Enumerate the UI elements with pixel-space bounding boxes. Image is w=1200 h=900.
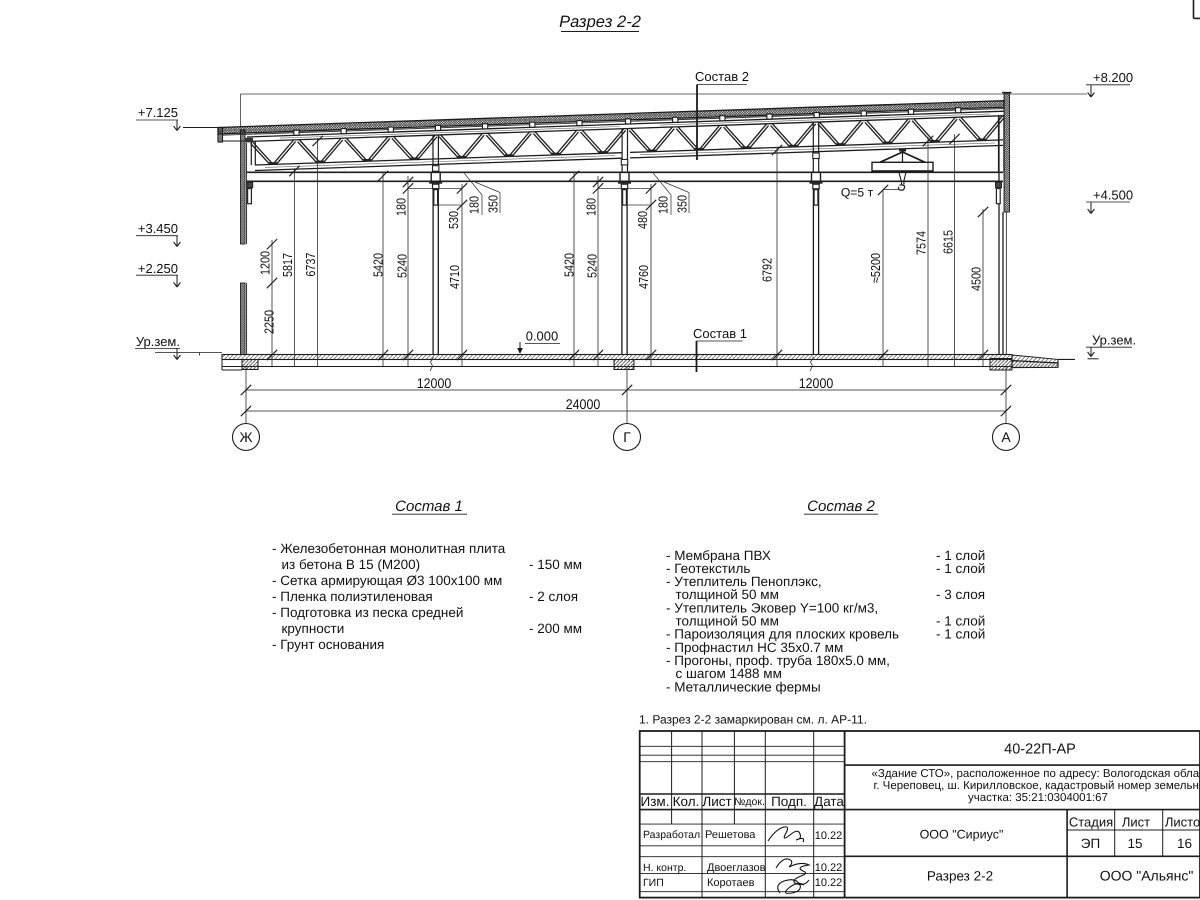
svg-text:10.22: 10.22 xyxy=(815,877,843,889)
svg-text:- 2 слоя: - 2 слоя xyxy=(529,589,578,604)
svg-text:4710: 4710 xyxy=(447,265,462,289)
svg-text:Ур.зем.: Ур.зем. xyxy=(1092,333,1136,348)
svg-text:Ур.зем.: Ур.зем. xyxy=(136,334,180,349)
svg-text:Решетова: Решетова xyxy=(705,829,756,841)
svg-text:40-22П-АР: 40-22П-АР xyxy=(1004,742,1076,758)
svg-text:350: 350 xyxy=(675,195,690,213)
svg-text:- Грунт основания: - Грунт основания xyxy=(272,637,384,652)
svg-text:Н. контр.: Н. контр. xyxy=(643,862,686,874)
svg-text:6792: 6792 xyxy=(760,258,775,282)
svg-text:Лист: Лист xyxy=(1122,815,1150,830)
svg-text:10.22: 10.22 xyxy=(815,830,843,842)
svg-text:+2.250: +2.250 xyxy=(138,261,178,276)
svg-text:≈5200: ≈5200 xyxy=(868,253,883,283)
svg-text:Разрез 2-2: Разрез 2-2 xyxy=(927,869,993,884)
svg-text:Стадия: Стадия xyxy=(1069,815,1113,830)
svg-text:- 1 слой: - 1 слой xyxy=(936,561,985,576)
svg-text:12000: 12000 xyxy=(799,375,834,391)
svg-text:- Подготовка из песка средней: - Подготовка из песка средней xyxy=(272,605,463,620)
svg-text:Разрез 2-2: Разрез 2-2 xyxy=(559,13,641,31)
svg-text:из бетона В 15 (М200): из бетона В 15 (М200) xyxy=(282,557,421,572)
svg-text:530: 530 xyxy=(446,211,461,229)
svg-text:- 1 слой: - 1 слой xyxy=(936,627,985,642)
svg-text:5420: 5420 xyxy=(562,253,577,277)
svg-text:Кол.: Кол. xyxy=(673,794,700,809)
svg-text:+8.200: +8.200 xyxy=(1093,70,1133,85)
svg-text:участка: 35:21:0304001:67: участка: 35:21:0304001:67 xyxy=(968,792,1108,804)
svg-text:№док.: №док. xyxy=(734,796,765,808)
svg-text:180: 180 xyxy=(584,198,599,216)
svg-text:Лист: Лист xyxy=(702,794,731,809)
svg-text:0.000: 0.000 xyxy=(526,329,559,344)
svg-text:180: 180 xyxy=(656,196,671,214)
svg-text:ЭП: ЭП xyxy=(1081,836,1100,851)
svg-text:Состав 2: Состав 2 xyxy=(695,69,749,84)
svg-text:350: 350 xyxy=(486,195,501,213)
svg-text:«Здание СТО», расположенное по: «Здание СТО», расположенное по адресу: В… xyxy=(872,768,1200,780)
svg-text:5240: 5240 xyxy=(395,254,410,278)
svg-text:10.22: 10.22 xyxy=(815,862,843,874)
svg-text:15: 15 xyxy=(1127,836,1142,851)
svg-text:- Пленка полиэтиленовая: - Пленка полиэтиленовая xyxy=(272,589,433,604)
svg-text:- 150 мм: - 150 мм xyxy=(529,557,582,572)
svg-text:1. Разрез 2-2 замаркирован см.: 1. Разрез 2-2 замаркирован см. л. АР-11. xyxy=(639,713,867,727)
svg-text:ГИП: ГИП xyxy=(643,877,664,889)
svg-text:180: 180 xyxy=(394,198,409,216)
svg-text:+4.500: +4.500 xyxy=(1093,188,1133,203)
svg-text:Разработал: Разработал xyxy=(643,829,700,841)
svg-text:4760: 4760 xyxy=(636,265,651,289)
svg-text:- 3 слоя: - 3 слоя xyxy=(936,587,985,602)
svg-text:- Сетка армирующая Ø3 100х100: - Сетка армирующая Ø3 100х100 мм xyxy=(272,573,502,588)
svg-text:ООО "Альянс": ООО "Альянс" xyxy=(1100,868,1194,884)
svg-text:г. Череповец, ш. Кирилловское,: г. Череповец, ш. Кирилловское, кадастров… xyxy=(874,780,1200,792)
svg-text:180: 180 xyxy=(467,196,482,214)
svg-text:1200: 1200 xyxy=(257,251,272,275)
svg-text:Состав 1: Состав 1 xyxy=(395,498,463,515)
svg-text:5420: 5420 xyxy=(371,253,386,277)
svg-text:5240: 5240 xyxy=(585,254,600,278)
svg-text:24000: 24000 xyxy=(566,396,601,412)
svg-text:6615: 6615 xyxy=(941,230,956,254)
svg-text:Г: Г xyxy=(623,429,631,445)
svg-text:7574: 7574 xyxy=(914,231,929,255)
svg-text:2250: 2250 xyxy=(262,310,277,334)
svg-text:- 200 мм: - 200 мм xyxy=(529,621,582,636)
svg-text:ООО "Сириус": ООО "Сириус" xyxy=(920,828,1004,842)
svg-text:Ж: Ж xyxy=(240,429,253,445)
svg-text:крупности: крупности xyxy=(282,621,345,636)
svg-text:5817: 5817 xyxy=(280,253,295,277)
svg-text:Состав 2: Состав 2 xyxy=(807,498,875,515)
svg-text:- Железобетонная монолитная п: - Железобетонная монолитная плита xyxy=(272,541,506,556)
svg-text:Листов: Листов xyxy=(1165,815,1200,830)
svg-text:+7.125: +7.125 xyxy=(138,105,178,120)
svg-text:- Металлические фермы: - Металлические фермы xyxy=(666,679,821,694)
svg-text:4500: 4500 xyxy=(969,267,984,291)
svg-text:Состав 1: Состав 1 xyxy=(693,326,747,341)
svg-text:Подп.: Подп. xyxy=(771,794,807,809)
svg-text:Изм.: Изм. xyxy=(641,794,670,809)
svg-text:+3.450: +3.450 xyxy=(138,221,178,236)
svg-text:16: 16 xyxy=(1177,836,1192,851)
svg-text:Двоеглазов: Двоеглазов xyxy=(707,862,766,874)
svg-text:6737: 6737 xyxy=(303,253,318,277)
svg-text:480: 480 xyxy=(635,211,650,229)
svg-text:Дата: Дата xyxy=(814,794,844,809)
svg-text:12000: 12000 xyxy=(417,375,452,391)
svg-text:Q=5 т: Q=5 т xyxy=(841,186,874,200)
svg-text:А: А xyxy=(1001,429,1011,445)
svg-text:Коротаев: Коротаев xyxy=(707,877,755,889)
